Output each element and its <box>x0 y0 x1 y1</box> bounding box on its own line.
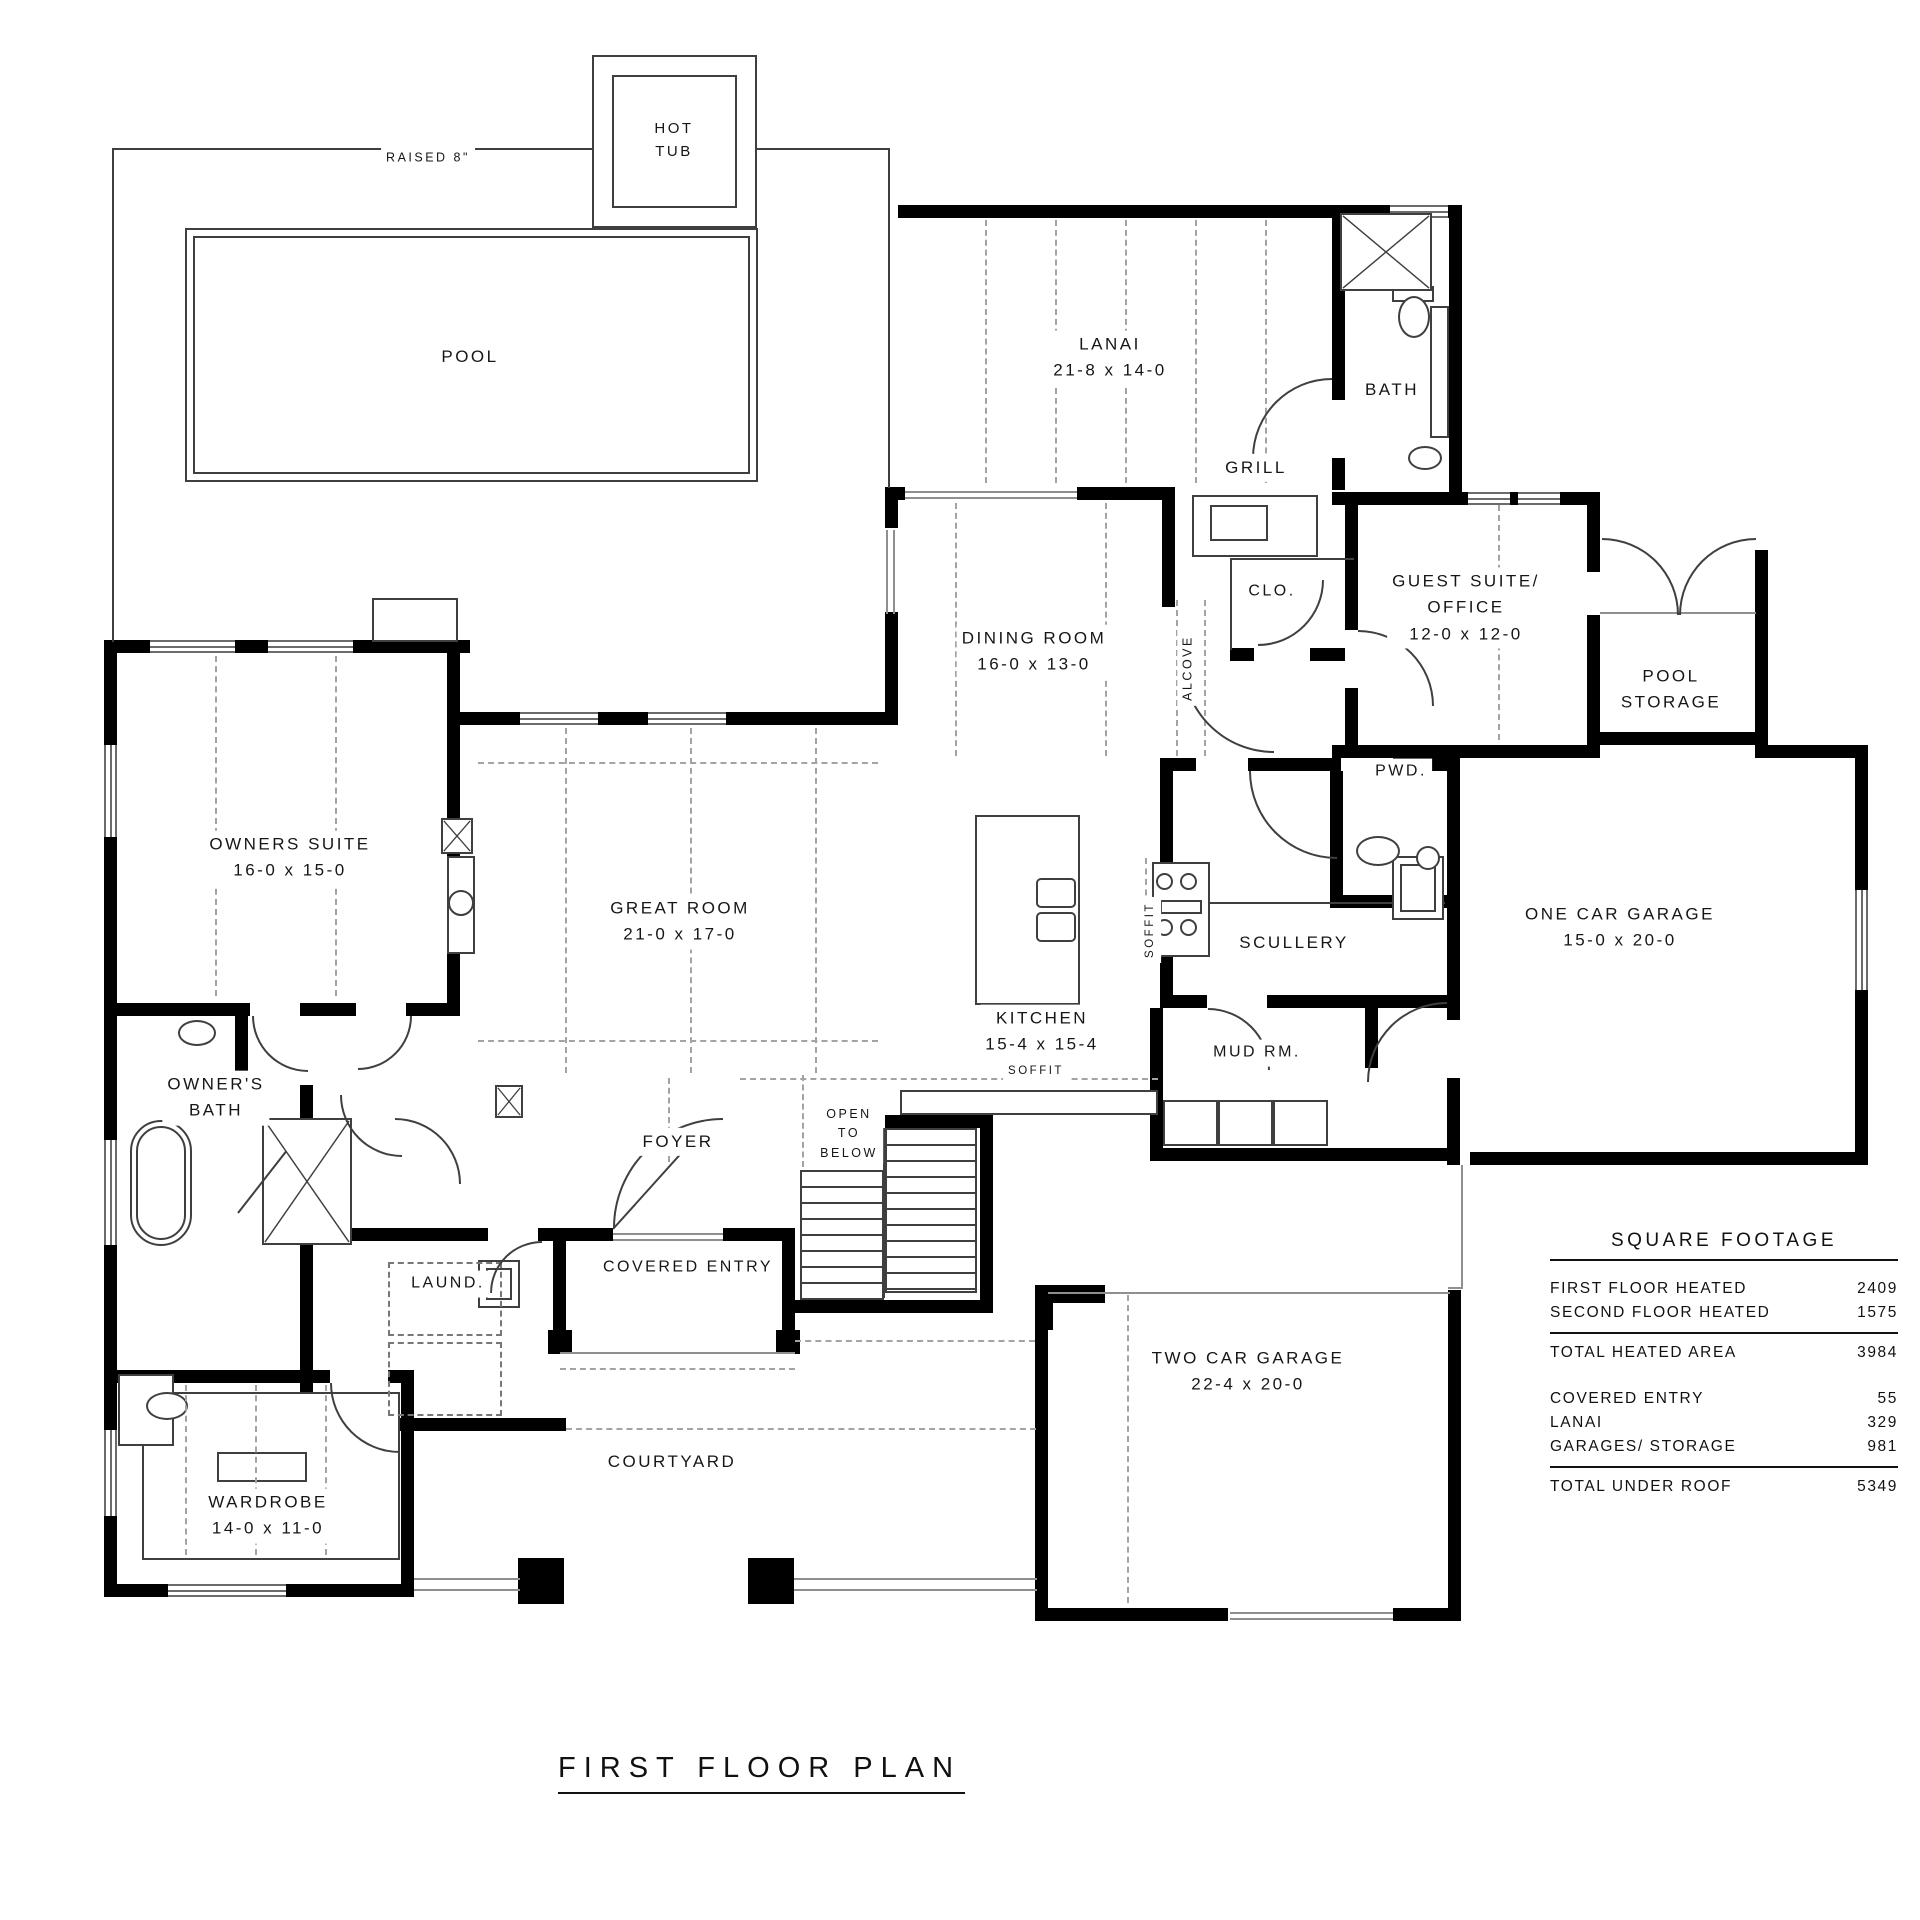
wall <box>1587 732 1768 745</box>
threshold-line <box>794 1578 1037 1580</box>
wall <box>518 1558 564 1604</box>
burner <box>1180 873 1197 890</box>
ceiling-dash-line <box>1195 220 1197 483</box>
threshold-line <box>905 497 1077 499</box>
threshold-line <box>414 1589 520 1591</box>
table-spacer <box>1550 1365 1898 1387</box>
square-footage-extra-rows: COVERED ENTRY55LANAI329GARAGES/ STORAGE9… <box>1550 1387 1898 1459</box>
threshold-line <box>1448 1287 1463 1289</box>
room-label-pool_storage: POOL STORAGE <box>1616 663 1726 718</box>
stairs <box>885 1128 977 1293</box>
threshold-line <box>1048 1292 1450 1294</box>
room-label-great_room: GREAT ROOM 21-0 x 17-0 <box>605 895 755 950</box>
threshold-line <box>905 491 1077 493</box>
room-label-grill: GRILL <box>1220 454 1292 482</box>
island-sink <box>1036 912 1076 942</box>
wall <box>548 1330 572 1354</box>
toilet <box>1398 296 1430 338</box>
kitchen-island <box>975 815 1080 1005</box>
wall <box>1448 1290 1461 1621</box>
sink <box>1408 446 1442 470</box>
threshold-line <box>1230 1612 1393 1614</box>
window <box>168 1584 286 1597</box>
ceiling-dash-line <box>560 1368 795 1370</box>
island-sink <box>1036 878 1076 908</box>
powder-sink <box>1356 836 1400 866</box>
window <box>150 640 235 653</box>
sqft-row-label: GARAGES/ STORAGE <box>1550 1435 1736 1459</box>
ceiling-dash-line <box>815 728 817 1073</box>
ceiling-dash-line <box>985 220 987 483</box>
wall <box>1150 1008 1163 1161</box>
door-opening <box>1207 995 1267 1008</box>
wall <box>1332 745 1600 758</box>
wall <box>1449 205 1462 505</box>
door-opening <box>356 1003 406 1016</box>
table-rule <box>1550 1466 1898 1468</box>
sqft-row-label: COVERED ENTRY <box>1550 1387 1704 1411</box>
ceiling-dash-line <box>802 1075 804 1167</box>
burner <box>1156 873 1173 890</box>
wall <box>776 1330 800 1354</box>
wall <box>885 1115 993 1128</box>
total-heated-label: TOTAL HEATED AREA <box>1550 1341 1737 1365</box>
owners-shower <box>262 1118 352 1245</box>
wall <box>980 1125 993 1313</box>
dryer-dashed <box>388 1342 502 1416</box>
wall-niche <box>495 1085 523 1118</box>
door-swing-arc <box>1679 538 1756 615</box>
sqft-row-label: FIRST FLOOR HEATED <box>1550 1277 1747 1301</box>
wall <box>795 1300 993 1313</box>
threshold-line <box>613 1239 723 1241</box>
thin-line <box>112 148 890 150</box>
wall <box>553 1228 613 1241</box>
wall <box>553 1241 566 1336</box>
mud-locker <box>1163 1100 1218 1146</box>
door-swing-arc <box>1367 1002 1447 1082</box>
room-label-pool: POOL <box>436 343 503 371</box>
range-detail <box>1160 900 1202 914</box>
fridge-inner <box>1400 864 1436 912</box>
wall <box>1755 745 1868 758</box>
room-label-bath: BATH <box>1360 376 1424 404</box>
window <box>104 745 117 837</box>
window <box>104 1430 117 1516</box>
threshold-line <box>1461 1165 1463 1287</box>
door-swing-arc <box>1602 538 1679 615</box>
threshold-line <box>886 530 888 614</box>
ceiling-dash-line <box>335 656 337 996</box>
thin-line <box>112 148 114 642</box>
threshold-line <box>893 530 895 614</box>
window <box>1468 492 1510 505</box>
sqft-row: LANAI329 <box>1550 1411 1898 1435</box>
room-label-hot_tub: HOT TUB <box>649 116 698 165</box>
wall <box>1587 615 1600 745</box>
sqft-row-value: 2409 <box>1857 1277 1898 1301</box>
room-label-alcove: ALCOVE <box>1177 630 1198 706</box>
window <box>104 1140 117 1245</box>
sqft-row-value: 55 <box>1878 1387 1898 1411</box>
door-opening <box>330 1370 388 1383</box>
threshold-line <box>1230 1618 1393 1620</box>
door-opening <box>1196 758 1248 771</box>
square-footage-table: SQUARE FOOTAGE FIRST FLOOR HEATED2409SEC… <box>1550 1230 1898 1499</box>
total-roof-value: 5349 <box>1857 1475 1898 1499</box>
wall <box>1587 732 1600 758</box>
cabinet-knob <box>448 890 474 916</box>
door-opening <box>1447 1020 1460 1078</box>
freestanding-tub-inner <box>136 1126 186 1240</box>
wall <box>1755 550 1768 745</box>
floor-plan-canvas: SQUARE FOOTAGE FIRST FLOOR HEATED2409SEC… <box>0 0 1920 1920</box>
ceiling-dash-line <box>1127 1295 1129 1603</box>
mud-locker <box>1273 1100 1328 1146</box>
room-label-clo: CLO. <box>1243 579 1300 606</box>
sqft-row-value: 981 <box>1867 1435 1898 1459</box>
total-roof-label: TOTAL UNDER ROOF <box>1550 1475 1732 1499</box>
burner <box>1180 919 1197 936</box>
door-opening <box>1332 400 1345 458</box>
room-label-raised: RAISED 8" <box>381 147 475 168</box>
ceiling-dash-line <box>215 656 217 996</box>
sqft-row: SECOND FLOOR HEATED1575 <box>1550 1301 1898 1325</box>
ceiling-dash-line <box>478 1040 878 1042</box>
wall <box>1470 1152 1868 1165</box>
threshold-line <box>414 1578 520 1580</box>
door-swing-arc <box>1252 378 1332 458</box>
vanity-sink <box>178 1020 216 1046</box>
ceiling-dash-line <box>566 1428 1036 1430</box>
wall <box>723 1228 795 1241</box>
wall <box>1162 487 1175 607</box>
room-label-soffit_v: SOFFIT <box>1141 897 1161 963</box>
threshold-line <box>560 1352 795 1354</box>
window <box>1855 890 1868 990</box>
window-seat <box>372 598 458 642</box>
room-label-one_car: ONE CAR GARAGE 15-0 x 20-0 <box>1520 901 1720 956</box>
door-swing-arc <box>358 1016 412 1070</box>
sqft-row: GARAGES/ STORAGE981 <box>1550 1435 1898 1459</box>
ceiling-dash-line <box>795 1340 1035 1342</box>
total-heated-value: 3984 <box>1857 1341 1898 1365</box>
window <box>520 712 598 725</box>
room-label-guest: GUEST SUITE/ OFFICE 12-0 x 12-0 <box>1387 567 1545 648</box>
table-rule <box>1550 1332 1898 1334</box>
room-label-laund: LAUND. <box>406 1271 490 1298</box>
powder-basin <box>1416 846 1440 870</box>
total-roof-row: TOTAL UNDER ROOF 5349 <box>1550 1475 1898 1499</box>
window <box>1518 492 1560 505</box>
ceiling-dash-line <box>478 762 878 764</box>
room-label-dining: DINING ROOM 16-0 x 13-0 <box>957 625 1112 680</box>
threshold-line <box>613 1233 723 1235</box>
kitchen-counter <box>900 1090 1158 1115</box>
room-label-wardrobe: WARDROBE 14-0 x 11-0 <box>203 1489 333 1544</box>
page-title: FIRST FLOOR PLAN <box>558 1752 965 1794</box>
wardrobe-bench <box>217 1452 307 1482</box>
room-label-foyer: FOYER <box>637 1128 718 1156</box>
wall <box>782 1241 795 1336</box>
window <box>648 712 726 725</box>
grill-appliance <box>1210 505 1268 541</box>
ceiling-dash-line <box>185 1385 187 1555</box>
room-label-open_below: OPEN TO BELOW <box>815 1104 883 1164</box>
wall <box>1150 1148 1460 1161</box>
room-label-lanai: LANAI 21-8 x 14-0 <box>1048 331 1172 386</box>
vanity-sink <box>146 1392 188 1420</box>
wall <box>1587 497 1600 572</box>
window <box>268 640 353 653</box>
wall <box>1035 1285 1048 1621</box>
room-label-owners_suite: OWNERS SUITE 16-0 x 15-0 <box>204 831 375 886</box>
thin-line <box>888 148 890 488</box>
sqft-row: COVERED ENTRY55 <box>1550 1387 1898 1411</box>
door-swing-arc <box>395 1118 461 1184</box>
room-label-scullery: SCULLERY <box>1234 929 1353 957</box>
door-opening <box>250 1003 300 1016</box>
door-swing-arc <box>1249 771 1337 859</box>
ceiling-dash-line <box>565 728 567 1073</box>
sqft-row: FIRST FLOOR HEATED2409 <box>1550 1277 1898 1301</box>
wall <box>748 1558 794 1604</box>
stairs <box>800 1170 884 1300</box>
mud-locker <box>1218 1100 1273 1146</box>
door-swing-arc <box>252 1016 308 1072</box>
sqft-row-value: 329 <box>1867 1411 1898 1435</box>
room-label-mud_rm: MUD RM. <box>1208 1040 1306 1067</box>
door-swing-arc <box>490 1241 542 1293</box>
sqft-row-value: 1575 <box>1857 1301 1898 1325</box>
pool-bath-shower <box>1340 213 1432 291</box>
sqft-row-label: SECOND FLOOR HEATED <box>1550 1301 1770 1325</box>
door-opening <box>1345 630 1358 688</box>
room-label-courtyard: COURTYARD <box>603 1448 742 1476</box>
room-label-soffit_h: SOFFIT <box>1003 1062 1069 1082</box>
threshold-line <box>794 1589 1037 1591</box>
room-label-two_car: TWO CAR GARAGE 22-4 x 20-0 <box>1147 1345 1350 1400</box>
sqft-row-label: LANAI <box>1550 1411 1603 1435</box>
door-opening <box>488 1228 538 1241</box>
room-label-pwd: PWD. <box>1370 759 1432 786</box>
door-opening <box>1254 648 1310 661</box>
thin-line <box>1230 558 1232 650</box>
bath-counter <box>1430 306 1449 438</box>
thin-line <box>1230 558 1354 560</box>
square-footage-title: SQUARE FOOTAGE <box>1550 1230 1898 1261</box>
total-heated-row: TOTAL HEATED AREA 3984 <box>1550 1341 1898 1365</box>
wall-niche <box>441 818 473 854</box>
square-footage-heated-rows: FIRST FLOOR HEATED2409SECOND FLOOR HEATE… <box>1550 1277 1898 1325</box>
wall <box>1447 758 1460 1165</box>
room-label-kitchen: KITCHEN 15-4 x 15-4 <box>980 1005 1104 1060</box>
room-label-owners_bath: OWNER'S BATH <box>162 1071 269 1126</box>
room-label-covered_entry: COVERED ENTRY <box>598 1255 778 1282</box>
